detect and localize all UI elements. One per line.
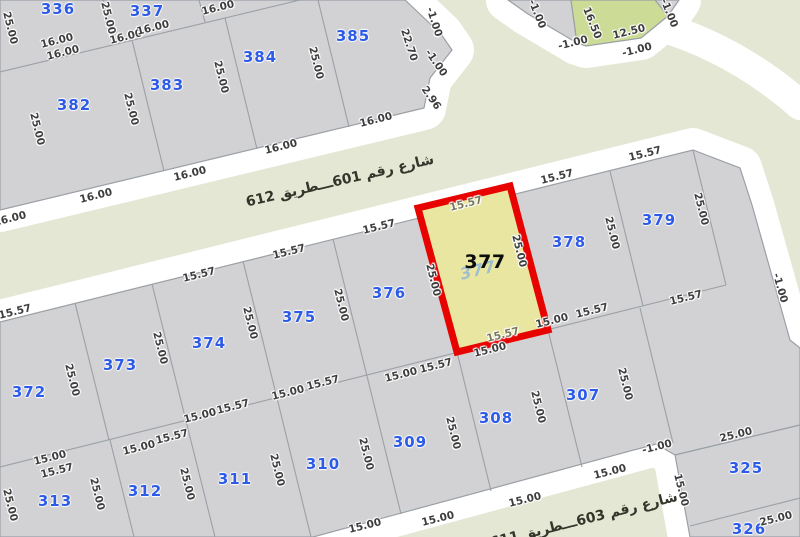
parcel-number-325[interactable]: 325 — [729, 459, 763, 477]
parcel-number-312[interactable]: 312 — [128, 482, 162, 500]
parcel-number-373[interactable]: 373 — [103, 356, 137, 374]
parcel-number-372[interactable]: 372 — [12, 383, 46, 401]
parcel-number-385[interactable]: 385 — [336, 27, 370, 45]
road-edge-curve-northeast — [655, 25, 800, 105]
parcel-number-307[interactable]: 307 — [566, 386, 600, 404]
cadastral-map: 3363373823833843853723733743753763783793… — [0, 0, 800, 537]
parcel-blocks — [0, 0, 800, 537]
parcel-number-308[interactable]: 308 — [479, 409, 513, 427]
parcel-number-311[interactable]: 311 — [218, 470, 252, 488]
parcel-number-374[interactable]: 374 — [192, 334, 226, 352]
parcel-number-336[interactable]: 336 — [41, 0, 75, 18]
parcel-number-309[interactable]: 309 — [393, 433, 427, 451]
parcel-number-376[interactable]: 376 — [372, 284, 406, 302]
parcel-number-378[interactable]: 378 — [552, 233, 586, 251]
parcel-number-383[interactable]: 383 — [150, 76, 184, 94]
parcel-number-384[interactable]: 384 — [243, 48, 277, 66]
parcel-number-375[interactable]: 375 — [282, 308, 316, 326]
parcel-number-337[interactable]: 337 — [130, 2, 164, 20]
selected-parcel-number[interactable]: 377 — [464, 251, 505, 273]
parcel-number-382[interactable]: 382 — [57, 96, 91, 114]
parcel-number-313[interactable]: 313 — [38, 492, 72, 510]
parcel-number-379[interactable]: 379 — [642, 211, 676, 229]
parcel-number-310[interactable]: 310 — [306, 455, 340, 473]
map-shapes — [0, 0, 800, 537]
